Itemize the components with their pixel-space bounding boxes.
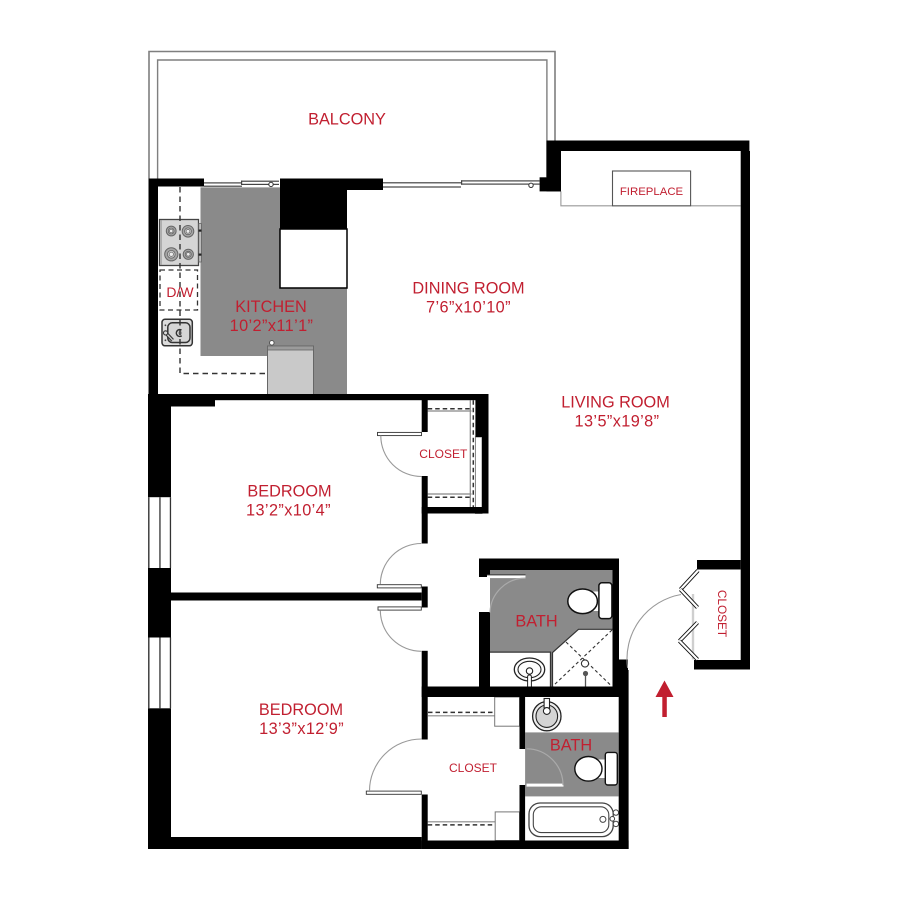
svg-text:CLOSET: CLOSET [715, 590, 729, 637]
svg-text:13’2”x10’4”: 13’2”x10’4” [246, 502, 331, 520]
svg-text:10’2”x11’1”: 10’2”x11’1” [230, 317, 314, 335]
svg-text:DINING ROOM: DINING ROOM [412, 280, 524, 298]
svg-text:FIREPLACE: FIREPLACE [620, 186, 684, 198]
svg-text:13’5”x19’8”: 13’5”x19’8” [575, 413, 660, 431]
svg-text:LIVING ROOM: LIVING ROOM [561, 394, 670, 412]
svg-text:13’3”x12’9”: 13’3”x12’9” [259, 720, 344, 738]
svg-text:BATH: BATH [550, 737, 592, 755]
svg-text:BEDROOM: BEDROOM [259, 701, 343, 719]
svg-text:BEDROOM: BEDROOM [247, 483, 331, 501]
svg-text:KITCHEN: KITCHEN [235, 298, 306, 316]
svg-text:CLOSET: CLOSET [449, 761, 498, 775]
svg-text:BALCONY: BALCONY [308, 111, 386, 129]
svg-text:7’6”x10’10”: 7’6”x10’10” [426, 299, 511, 317]
svg-text:CLOSET: CLOSET [419, 447, 468, 461]
svg-text:D/W: D/W [166, 284, 194, 300]
svg-text:BATH: BATH [515, 613, 557, 631]
